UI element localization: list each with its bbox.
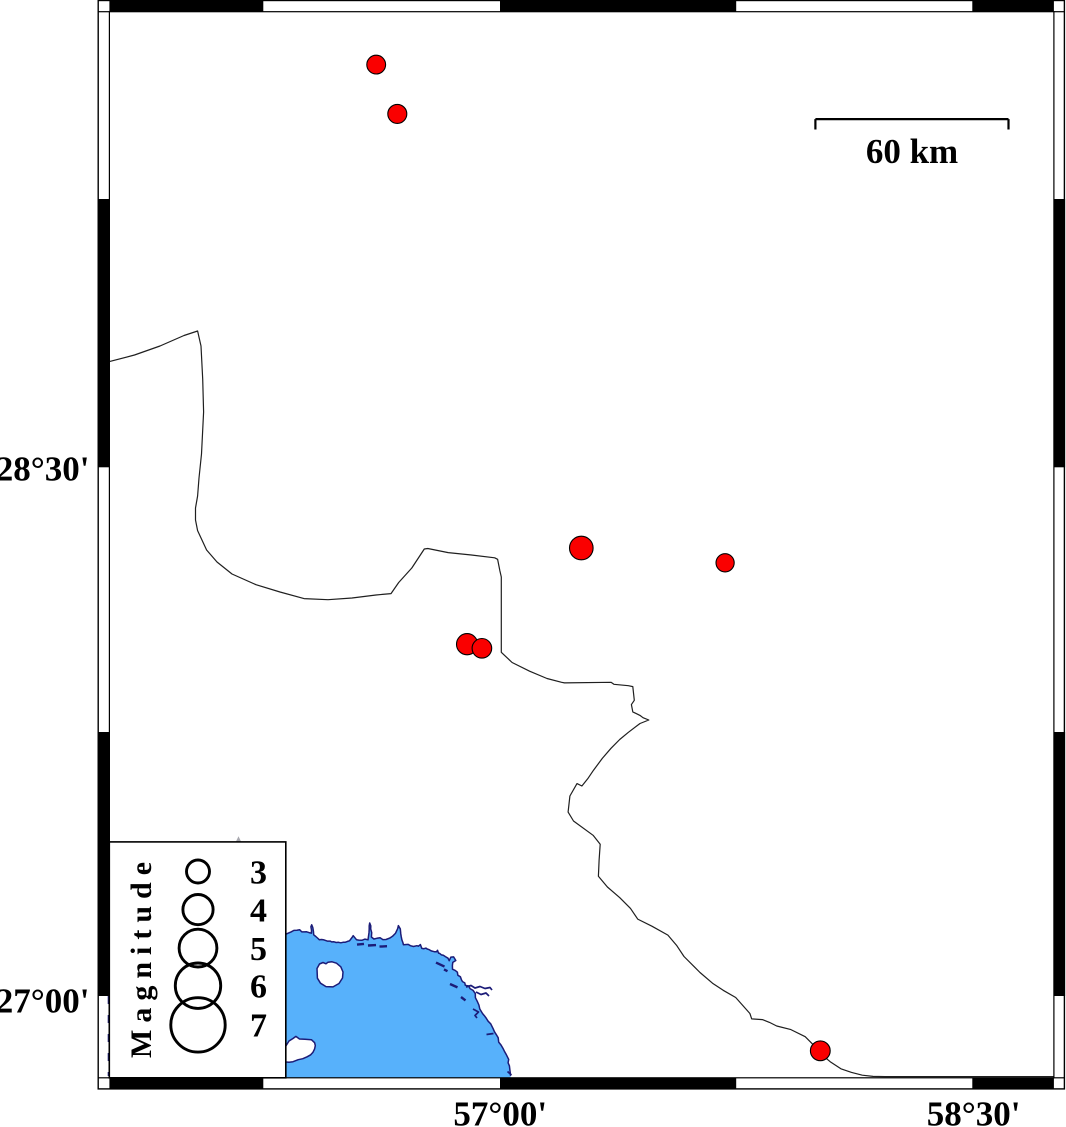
svg-text:4: 4: [250, 892, 267, 929]
svg-text:60 km: 60 km: [866, 132, 958, 171]
svg-text:57°00': 57°00': [453, 1095, 547, 1127]
svg-text:5: 5: [250, 931, 267, 968]
svg-text:27°00': 27°00': [0, 982, 90, 1021]
svg-text:7: 7: [250, 1008, 267, 1045]
svg-text:6: 6: [250, 969, 267, 1006]
svg-text:Magnitude: Magnitude: [125, 855, 158, 1058]
svg-text:58°30': 58°30': [927, 1095, 1021, 1127]
svg-text:28°30': 28°30': [0, 450, 90, 489]
svg-text:3: 3: [250, 854, 267, 891]
